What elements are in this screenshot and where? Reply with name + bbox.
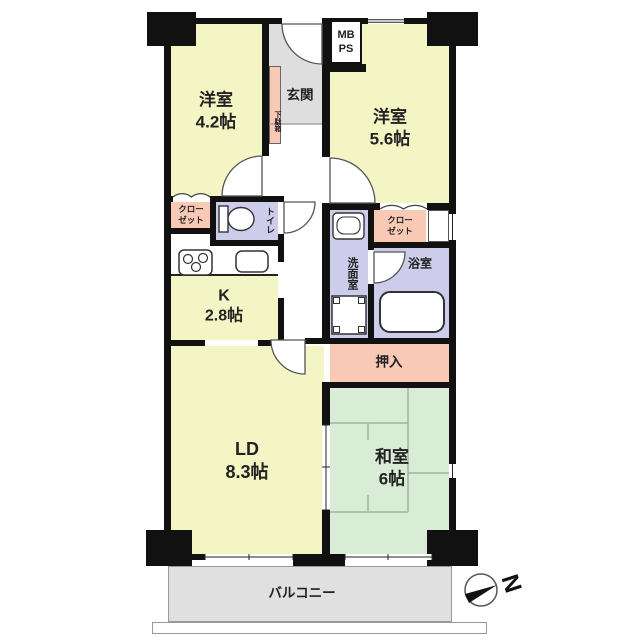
opening-kitchen-corridor xyxy=(278,262,284,298)
label-toilet: トイレ xyxy=(263,201,274,239)
wall-toilet-bottom xyxy=(210,240,284,246)
label-futon-closet: 押入 xyxy=(376,353,403,370)
wall-under-mbps xyxy=(330,64,366,72)
wall-corridor-right-lower xyxy=(322,203,330,338)
wall-right xyxy=(449,18,456,560)
opening-ld-door xyxy=(284,338,305,344)
wall-closet-left-bottom xyxy=(164,228,216,234)
wall-corridor-right-upper xyxy=(322,24,330,72)
wall-corridor-right-mid xyxy=(322,72,330,157)
opening-western2-door xyxy=(322,157,330,203)
window-western2-top xyxy=(368,18,404,24)
label-western2: 洋室5.6帖 xyxy=(370,106,411,150)
wall-balcony-divider xyxy=(293,554,345,566)
opening-western1-door xyxy=(262,156,269,196)
opening-bath-door xyxy=(368,250,374,284)
opening-kitchen-ld xyxy=(205,340,258,346)
wall-futon-top xyxy=(322,338,449,344)
wall-western1-right xyxy=(262,24,269,156)
window-washitsu-balcony xyxy=(345,554,432,560)
pillar-top-left xyxy=(147,12,196,46)
label-bathroom: 浴室 xyxy=(408,256,432,271)
label-western1: 洋室4.2帖 xyxy=(196,89,237,133)
window-ld-balcony xyxy=(205,554,293,560)
pillar-top-right xyxy=(427,12,478,46)
kitchen-counter xyxy=(171,246,278,276)
closet-right-white-section xyxy=(428,210,449,242)
pillar-bottom-left xyxy=(146,530,192,566)
label-balcony: バルコニー xyxy=(268,584,335,601)
wall-futon-bottom xyxy=(322,382,449,388)
label-shoe-cabinet: 下駄箱 xyxy=(270,99,281,143)
opening-closet-right xyxy=(380,203,427,210)
floor-plan: N 洋室4.2帖 洋室5.6帖 玄関 下駄箱 MBPS クローゼット トイレ K… xyxy=(0,0,640,640)
label-entrance: 玄関 xyxy=(287,86,314,103)
label-meter-box: MBPS xyxy=(337,28,354,56)
compass-north-label: N xyxy=(496,571,527,596)
label-closet-right: クローゼット xyxy=(387,215,413,237)
window-right-washitsu xyxy=(449,464,456,478)
window-washitsu-slider-side xyxy=(322,425,330,510)
label-living-dining: LD8.3帖 xyxy=(225,438,268,484)
label-closet-left: クローゼット xyxy=(178,204,204,226)
label-kitchen: K2.8帖 xyxy=(205,287,243,328)
label-japanese-room: 和室6帖 xyxy=(375,446,409,490)
opening-toilet-door xyxy=(278,202,284,234)
wall-left xyxy=(164,18,171,560)
pillar-bottom-right xyxy=(427,530,478,566)
compass-circle xyxy=(465,574,497,606)
label-washroom: 洗面室 xyxy=(343,247,357,299)
wall-closet-right-bottom xyxy=(368,242,449,248)
opening-front-door xyxy=(282,18,322,24)
compass: N xyxy=(465,571,527,606)
balcony-base-plate xyxy=(152,622,487,634)
window-right-wet-row xyxy=(449,214,456,240)
opening-closet-left xyxy=(173,196,210,202)
compass-needle xyxy=(465,585,497,603)
